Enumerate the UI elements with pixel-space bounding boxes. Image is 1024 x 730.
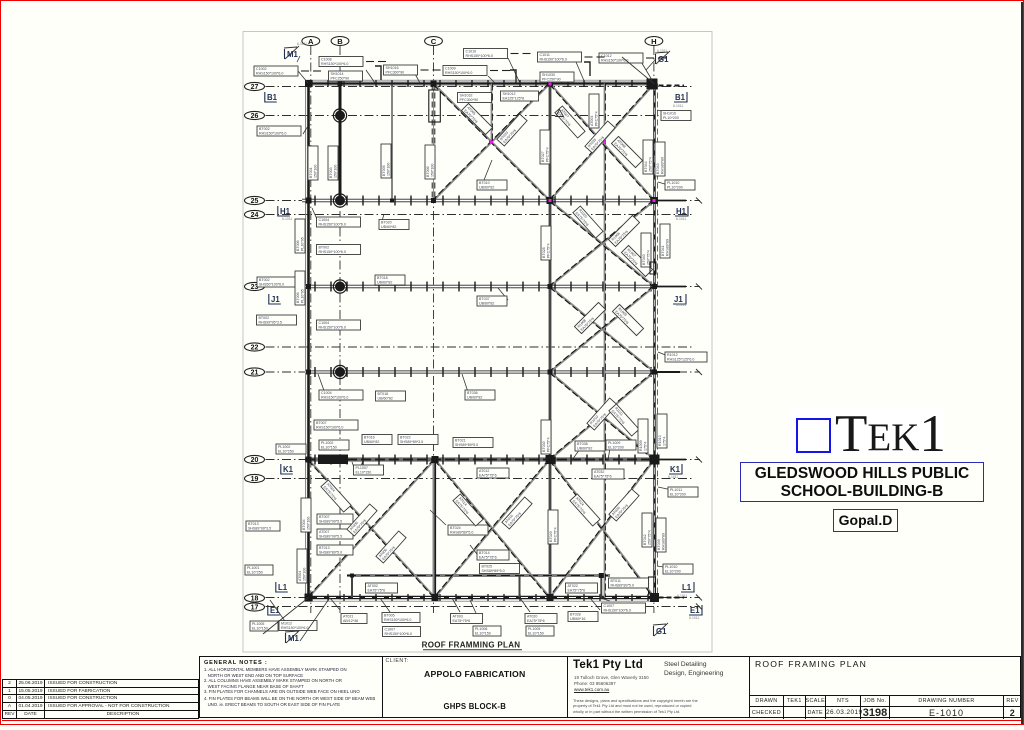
svg-text:25: 25 <box>251 198 259 205</box>
svg-text:EL10*150: EL10*150 <box>252 627 268 631</box>
svg-text:B1: B1 <box>267 93 278 102</box>
svg-text:6-1011: 6-1011 <box>689 616 699 620</box>
svg-text:C1007: C1007 <box>604 604 615 608</box>
svg-text:EL10*200: EL10*200 <box>670 493 686 497</box>
svg-text:PFC75*4: PFC75*4 <box>546 147 550 162</box>
svg-text:PFC75*4: PFC75*4 <box>554 527 558 542</box>
svg-text:EA75*75*6: EA75*75*6 <box>594 475 612 479</box>
svg-text:RHS150*100*6.0: RHS150*100*6.0 <box>281 626 308 630</box>
svg-text:RHS150*100*6.0: RHS150*100*6.0 <box>604 609 631 613</box>
svg-text:PFC75*4: PFC75*4 <box>547 243 551 258</box>
svg-text:R1009: R1009 <box>639 440 643 451</box>
svg-text:M1012: M1012 <box>281 622 292 626</box>
svg-text:EL10*200: EL10*200 <box>608 446 624 450</box>
svg-text:22: 22 <box>251 345 259 352</box>
svg-text:BT014: BT014 <box>479 551 490 555</box>
svg-text:M1: M1 <box>288 634 299 643</box>
svg-text:27: 27 <box>251 84 259 91</box>
svg-text:B1: B1 <box>675 93 686 102</box>
svg-text:6-1011: 6-1011 <box>297 42 307 46</box>
svg-text:UB/60*82: UB/60*82 <box>479 186 494 190</box>
svg-text:ROOF FRAMMING PLAN: ROOF FRAMMING PLAN <box>422 641 521 650</box>
svg-text:H: H <box>651 37 656 46</box>
svg-text:AT003: AT003 <box>590 116 594 126</box>
svg-text:18: 18 <box>251 596 259 603</box>
svg-text:EA75*75*6: EA75*75*6 <box>479 474 497 478</box>
svg-text:BT005: BT005 <box>384 614 395 618</box>
svg-text:BT002: BT002 <box>259 278 270 282</box>
svg-text:PL1002: PL1002 <box>278 445 290 449</box>
svg-text:PFC75*4: PFC75*4 <box>595 111 599 126</box>
svg-text:BT006: BT006 <box>296 240 300 251</box>
svg-text:RHS89*89*5.0: RHS89*89*5.0 <box>450 531 473 535</box>
svg-text:6-1011: 6-1011 <box>668 475 678 479</box>
svg-text:EL10*150: EL10*150 <box>528 632 544 636</box>
svg-text:L1: L1 <box>682 583 692 592</box>
svg-text:C1012: C1012 <box>601 54 612 58</box>
svg-text:BT027: BT027 <box>541 151 545 162</box>
svg-text:H1: H1 <box>676 207 687 216</box>
svg-text:BT007: BT007 <box>319 515 330 519</box>
svg-text:BT007: BT007 <box>316 421 327 425</box>
svg-text:BT030: BT030 <box>542 441 546 452</box>
svg-text:SHS89*99*5.5: SHS89*99*5.5 <box>319 520 342 524</box>
svg-text:UB/60*16: UB/60*16 <box>570 617 585 621</box>
svg-text:BT018: BT018 <box>377 276 388 280</box>
svg-text:R1012: R1012 <box>667 353 678 357</box>
svg-text:175*4: 175*4 <box>663 437 667 446</box>
svg-text:RHS150*100*6.0: RHS150*100*6.0 <box>321 62 348 66</box>
svg-text:6-1011: 6-1011 <box>282 217 292 221</box>
svg-text:BT005: BT005 <box>382 165 386 176</box>
svg-text:C1007: C1007 <box>385 628 396 632</box>
svg-text:24: 24 <box>251 212 259 219</box>
svg-text:RHS150*100*6.0: RHS150*100*6.0 <box>256 72 283 76</box>
svg-text:PL1007: PL1007 <box>356 466 368 470</box>
svg-text:UB/60*82: UB/60*82 <box>479 302 494 306</box>
svg-text:EA75*75*6: EA75*75*6 <box>527 619 545 623</box>
svg-text:RHS150*100*6.0: RHS150*100*6.0 <box>466 54 493 58</box>
svg-text:BT010: BT010 <box>479 181 490 185</box>
svg-text:BT044: BT044 <box>644 161 648 172</box>
svg-text:150*100: 150*100 <box>303 568 307 581</box>
svg-text:BT043: BT043 <box>656 163 660 174</box>
svg-text:26: 26 <box>251 113 259 120</box>
svg-text:SH1016: SH1016 <box>386 66 399 70</box>
svg-text:AT003: AT003 <box>453 615 463 619</box>
svg-text:AB/12*46: AB/12*46 <box>343 619 358 623</box>
svg-text:UB/60*82: UB/60*82 <box>381 225 396 229</box>
svg-text:L1: L1 <box>278 583 288 592</box>
svg-text:BT037: BT037 <box>479 297 490 301</box>
svg-text:M1: M1 <box>287 50 298 59</box>
svg-text:SHS89*89*5.0: SHS89*89*5.0 <box>482 569 505 573</box>
svg-text:PL10*95: PL10*95 <box>301 289 305 303</box>
svg-text:BT006: BT006 <box>426 166 430 177</box>
svg-text:EA75*75*6: EA75*75*6 <box>479 556 497 560</box>
svg-text:AT012: AT012 <box>479 469 489 473</box>
svg-text:AT007: AT007 <box>319 530 329 534</box>
svg-text:PFC250*90: PFC250*90 <box>331 77 350 81</box>
svg-text:BT029: BT029 <box>549 531 553 542</box>
svg-text:150*100: 150*100 <box>307 517 311 530</box>
svg-text:EA125*125*8: EA125*125*8 <box>503 97 525 101</box>
svg-text:BT028: BT028 <box>570 613 581 617</box>
svg-text:G1: G1 <box>656 627 667 636</box>
svg-text:6-1011: 6-1011 <box>657 49 667 53</box>
svg-text:250*75*4: 250*75*4 <box>648 530 652 545</box>
svg-text:BT038: BT038 <box>577 442 588 446</box>
svg-text:RHS150*100*6.0: RHS150*100*6.0 <box>321 396 348 400</box>
svg-text:RHS99*95*3.5: RHS99*95*3.5 <box>259 321 282 325</box>
svg-text:H1: H1 <box>280 207 291 216</box>
svg-text:BT020: BT020 <box>381 221 392 225</box>
svg-text:SH1030: SH1030 <box>542 73 555 77</box>
svg-text:PL10*200: PL10*200 <box>667 186 683 190</box>
svg-text:AT022: AT022 <box>568 584 578 588</box>
svg-text:SH1032: SH1032 <box>460 94 473 98</box>
svg-text:PL1005: PL1005 <box>528 627 540 631</box>
svg-text:SHS89*99*3.5: SHS89*99*3.5 <box>248 527 271 531</box>
svg-text:EL10*250: EL10*250 <box>247 571 263 575</box>
svg-text:BT002: BT002 <box>319 246 330 250</box>
svg-text:BT013: BT013 <box>248 522 259 526</box>
svg-text:R1013: R1013 <box>658 435 662 446</box>
svg-text:PL10*95: PL10*95 <box>301 237 305 251</box>
svg-text:BT039: BT039 <box>657 539 661 550</box>
svg-text:6-1011: 6-1011 <box>677 594 687 598</box>
svg-text:SHS89*89*5.0: SHS89*89*5.0 <box>455 443 478 447</box>
svg-text:RHS150*100*6.0: RHS150*100*6.0 <box>445 71 472 75</box>
svg-text:BT028: BT028 <box>542 247 546 258</box>
svg-text:RHS150*100*6.0: RHS150*100*6.0 <box>319 326 346 330</box>
svg-text:EA75*75*6: EA75*75*6 <box>368 589 386 593</box>
svg-text:SHS89*89*5.0: SHS89*89*5.0 <box>319 551 342 555</box>
svg-text:PFC250*90: PFC250*90 <box>542 78 561 82</box>
svg-text:G1: G1 <box>658 55 669 64</box>
svg-text:E1: E1 <box>690 606 700 615</box>
svg-text:EL10*200: EL10*200 <box>665 570 681 574</box>
svg-text:EL10*150: EL10*150 <box>356 471 372 475</box>
svg-text:PL10*200: PL10*200 <box>663 116 679 120</box>
svg-text:150*100: 150*100 <box>431 164 435 177</box>
svg-text:SHS50*100*6.0: SHS50*100*6.0 <box>259 283 284 287</box>
svg-text:BT041: BT041 <box>661 245 665 256</box>
svg-text:AT004: AT004 <box>298 571 302 581</box>
svg-text:BT001: BT001 <box>309 167 313 178</box>
svg-text:PL1011: PL1011 <box>670 488 682 492</box>
svg-text:PL1010: PL1010 <box>667 181 679 185</box>
svg-text:RHS150*100*6.0: RHS150*100*6.0 <box>259 132 286 136</box>
svg-text:C1010: C1010 <box>466 50 477 54</box>
svg-text:UB/60*82: UB/60*82 <box>378 397 393 401</box>
svg-text:BT003: BT003 <box>329 167 333 178</box>
svg-text:K1: K1 <box>670 465 681 474</box>
svg-text:C1002: C1002 <box>256 67 267 71</box>
svg-text:PL1010: PL1010 <box>665 565 677 569</box>
svg-text:BT025: BT025 <box>482 565 493 569</box>
svg-text:SHS89*89*3.5: SHS89*89*3.5 <box>400 440 423 444</box>
svg-text:UB/60*82: UB/60*82 <box>467 396 482 400</box>
svg-text:BT002: BT002 <box>259 316 270 320</box>
svg-text:BT022: BT022 <box>400 436 411 440</box>
svg-text:RHS150*100*6.0: RHS150*100*6.0 <box>384 618 411 622</box>
svg-text:250*75*4: 250*75*4 <box>649 157 653 172</box>
svg-text:BT042: BT042 <box>643 534 647 545</box>
svg-text:175*4: 175*4 <box>644 442 648 451</box>
svg-text:BT024: BT024 <box>450 526 461 530</box>
svg-text:EA75*75*6: EA75*75*6 <box>453 619 471 623</box>
svg-text:C1009: C1009 <box>445 67 456 71</box>
svg-text:UB/60*82: UB/60*82 <box>377 281 392 285</box>
svg-text:17: 17 <box>251 605 259 612</box>
svg-text:RHS150*100*6.0: RHS150*100*6.0 <box>540 58 567 62</box>
svg-text:UB/60*82: UB/60*82 <box>577 447 592 451</box>
svg-text:C1004: C1004 <box>319 218 330 222</box>
svg-text:C1011: C1011 <box>540 53 550 57</box>
svg-text:EA75*75*6: EA75*75*6 <box>568 589 586 593</box>
svg-text:PL1002: PL1002 <box>321 441 333 445</box>
svg-text:RHS89*89: RHS89*89 <box>666 239 670 256</box>
svg-text:SH1012: SH1012 <box>503 92 516 96</box>
svg-text:SH1016: SH1016 <box>663 112 676 116</box>
svg-text:BT006: BT006 <box>296 292 300 303</box>
svg-text:J1: J1 <box>271 295 280 304</box>
svg-text:PFC75*4: PFC75*4 <box>547 437 551 452</box>
svg-text:C1004: C1004 <box>321 391 332 395</box>
svg-text:PL1001: PL1001 <box>247 566 259 570</box>
svg-text:150*100: 150*100 <box>387 163 391 176</box>
svg-text:150*100: 150*100 <box>334 165 338 178</box>
svg-text:6-1011: 6-1011 <box>673 104 683 108</box>
svg-text:RHS150*100*6.0: RHS150*100*6.0 <box>385 632 412 636</box>
svg-text:SHS89*99*5.5: SHS89*99*5.5 <box>319 535 342 539</box>
svg-text:C1004: C1004 <box>319 321 330 325</box>
svg-text:19: 19 <box>251 476 259 483</box>
svg-text:RHS89*89: RHS89*89 <box>662 533 666 550</box>
svg-text:BT004: BT004 <box>302 519 306 530</box>
svg-text:BT011: BT011 <box>611 579 621 583</box>
svg-text:B: B <box>337 37 343 46</box>
svg-text:RHS89*89: RHS89*89 <box>661 157 665 174</box>
svg-text:AT020: AT020 <box>527 615 537 619</box>
svg-text:BT018: BT018 <box>378 392 389 396</box>
svg-text:BT002: BT002 <box>259 127 270 131</box>
svg-text:AT002: AT002 <box>368 584 378 588</box>
svg-text:K1: K1 <box>283 465 294 474</box>
svg-text:BT013: BT013 <box>319 546 330 550</box>
svg-text:RHS125*125*6.0: RHS125*125*6.0 <box>667 358 694 362</box>
svg-text:EL10*250: EL10*250 <box>278 450 294 454</box>
svg-text:RHS150*100*6.0: RHS150*100*6.0 <box>319 250 346 254</box>
svg-text:21: 21 <box>251 370 259 377</box>
svg-text:6-1011: 6-1011 <box>676 217 686 221</box>
svg-text:150*100: 150*100 <box>314 165 318 178</box>
svg-text:PFC300*90: PFC300*90 <box>460 98 479 102</box>
svg-text:AT021: AT021 <box>343 615 353 619</box>
svg-text:EL10*150: EL10*150 <box>321 446 337 450</box>
svg-text:6-1011: 6-1011 <box>676 303 686 307</box>
svg-text:SH1014: SH1014 <box>331 72 344 76</box>
svg-text:BT036: BT036 <box>467 391 478 395</box>
svg-text:A: A <box>308 37 314 46</box>
svg-text:PFC300*90: PFC300*90 <box>386 71 405 75</box>
svg-text:20: 20 <box>251 457 259 464</box>
svg-text:AT032: AT032 <box>594 470 604 474</box>
svg-text:BT040: BT040 <box>642 254 646 265</box>
svg-text:EL10*150: EL10*150 <box>475 632 491 636</box>
svg-text:PL1005: PL1005 <box>252 622 264 626</box>
svg-text:PL1008: PL1008 <box>475 627 487 631</box>
svg-text:C1008: C1008 <box>321 58 332 62</box>
svg-text:RHS150*100*6.0: RHS150*100*6.0 <box>316 426 343 430</box>
svg-text:C: C <box>431 37 437 46</box>
svg-text:UB/60*82: UB/60*82 <box>364 440 379 444</box>
svg-text:BT016: BT016 <box>364 436 375 440</box>
svg-text:PL1009: PL1009 <box>608 441 620 445</box>
svg-text:RHS89*89*5.0: RHS89*89*5.0 <box>611 584 634 588</box>
svg-text:BT021: BT021 <box>455 439 466 443</box>
svg-text:RHS150*100*6.0: RHS150*100*6.0 <box>319 223 346 227</box>
